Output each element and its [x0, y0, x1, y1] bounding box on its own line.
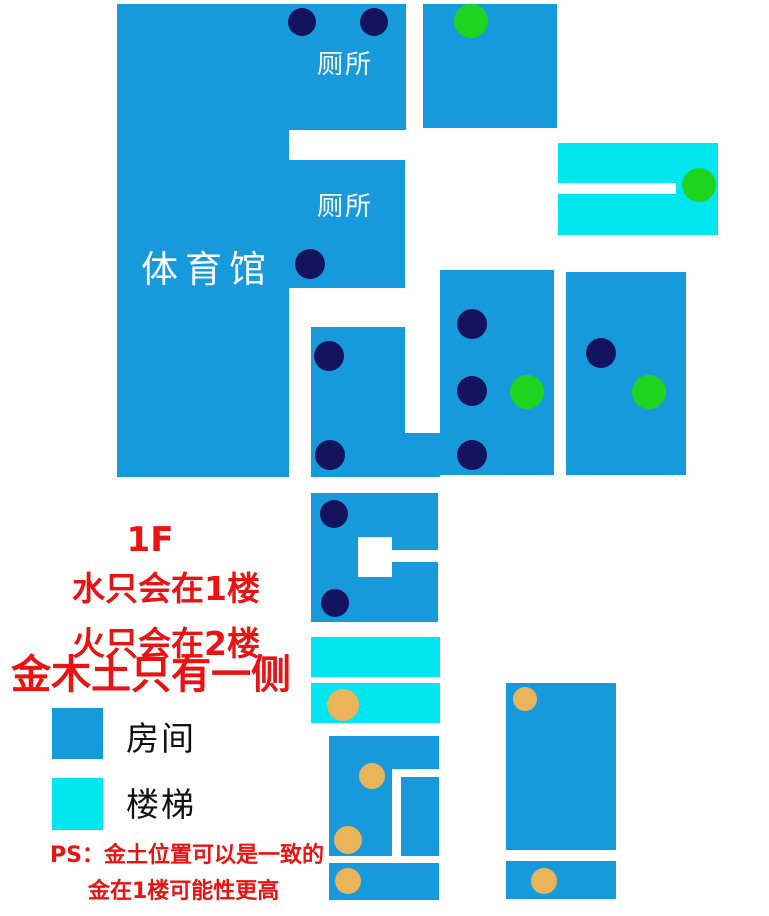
cutout-lower-left-slot	[392, 550, 438, 562]
toilet-label-top: 厕所	[289, 52, 401, 78]
navy-dot	[586, 338, 616, 368]
navy-dot	[320, 500, 348, 528]
orange-dot	[335, 868, 361, 894]
orange-dot	[334, 826, 362, 854]
floor-label: 1F	[0, 523, 300, 557]
navy-dot	[457, 440, 487, 470]
navy-dot	[457, 309, 487, 339]
cutout-bottom-left-slot-h	[392, 769, 439, 777]
navy-dot	[314, 341, 344, 371]
gym-label: 体育馆	[117, 251, 297, 288]
legend-room-label: 房间	[126, 722, 196, 755]
navy-dot	[288, 8, 316, 36]
note-water-floor1: 水只会在1楼	[16, 572, 316, 605]
navy-dot	[321, 589, 349, 617]
postscript-line1: PS：金土位置可以是一致的	[50, 845, 324, 867]
room-bottom-right-strip	[506, 861, 616, 899]
room-gym-main	[117, 4, 289, 477]
legend-stair-label: 楼梯	[126, 788, 196, 821]
note-elements-one-side: 金木土只有一侧	[1, 655, 301, 695]
room-mid-center	[440, 270, 554, 475]
green-dot	[510, 375, 544, 409]
cutout-mid-left-channel	[405, 327, 440, 433]
cutout-lower-left-square	[358, 537, 392, 577]
green-dot	[682, 168, 716, 202]
room-mid-right	[566, 272, 686, 475]
navy-dot	[360, 8, 388, 36]
green-dot	[454, 4, 488, 38]
cutout-bottom-left-slot-v	[392, 777, 401, 856]
orange-dot	[531, 868, 557, 894]
legend-room-swatch	[52, 708, 103, 759]
legend-stair-swatch	[52, 778, 103, 830]
toilet-label-mid: 厕所	[289, 194, 401, 220]
navy-dot	[295, 249, 325, 279]
stair-mid-upper	[311, 637, 440, 677]
postscript-line2: 金在1楼可能性更高	[88, 881, 279, 903]
cutout-stair-slot	[558, 183, 676, 194]
navy-dot	[457, 376, 487, 406]
orange-dot	[513, 687, 537, 711]
floorplan-map: 体育馆 厕所 厕所 1F 水只会在1楼 火只会在2楼 金木土只有一侧 房间 楼梯…	[0, 0, 769, 916]
orange-dot	[327, 689, 359, 721]
orange-dot	[359, 763, 385, 789]
green-dot	[632, 375, 666, 409]
room-top-right	[423, 4, 557, 128]
navy-dot	[315, 440, 345, 470]
